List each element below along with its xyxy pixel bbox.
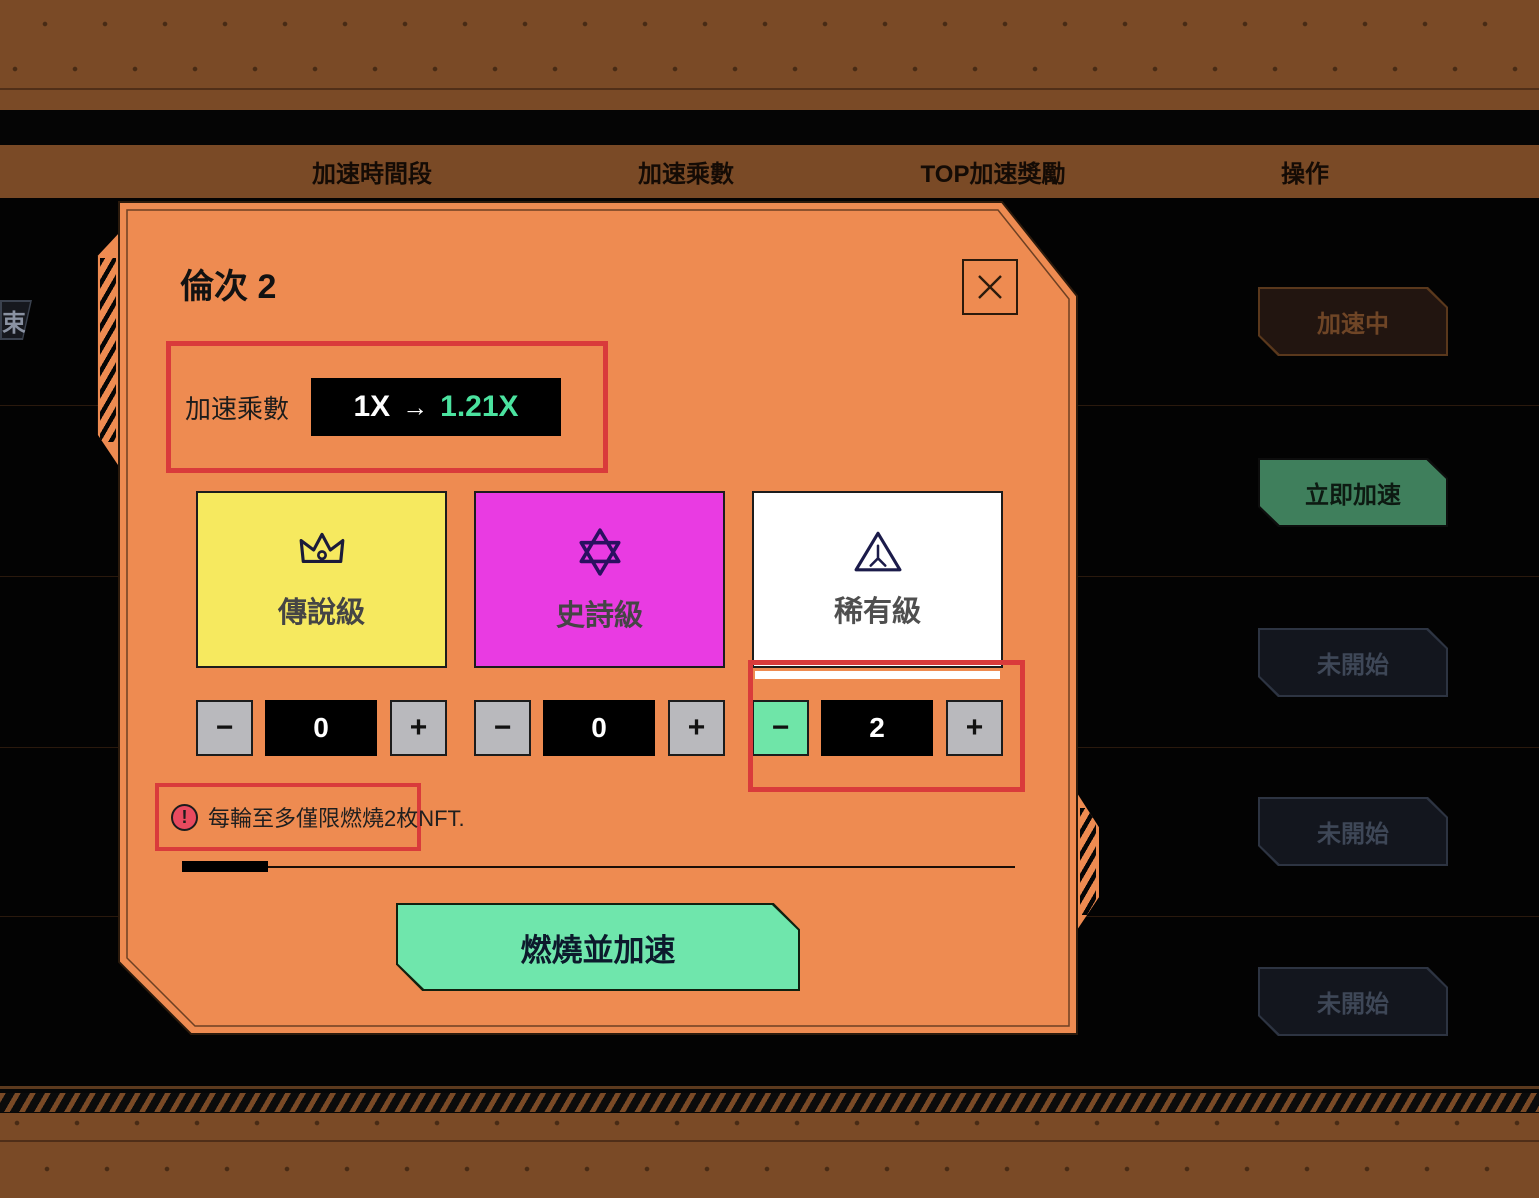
count-value: 0 [265,700,377,756]
hexagram-icon [577,526,623,576]
arrow-right-icon: → [402,392,428,423]
page: 加速時間段 加速乘數 TOP加速獎勵 操作 束 加速中 立即加速 未開始 未開始… [0,0,1539,1198]
status-chip-clipped: 束 [0,300,32,340]
multiplier-to: 1.21X [440,390,518,424]
rare-stepper-highlight-box [748,660,1025,792]
minus-button[interactable]: − [196,700,253,756]
burn-progress-fill [182,861,268,872]
action-button-accelerate-now[interactable]: 立即加速 [1258,458,1448,527]
card-label: 史詩級 [556,592,643,634]
burn-and-accelerate-button[interactable]: 燃燒並加速 [396,903,800,991]
burn-button-label: 燃燒並加速 [396,903,800,991]
action-button-label: 未開始 [1258,797,1448,866]
action-button-not-started: 未開始 [1258,967,1448,1036]
triangle-icon [854,530,902,572]
close-button[interactable] [962,259,1018,315]
multiplier-highlight-box: 加速乘數 1X → 1.21X [166,341,608,473]
warning-text: 每輪至多僅限燃燒2枚NFT. [208,801,465,833]
rare-card-selected-underline [755,671,1000,679]
multiplier-badge: 1X → 1.21X [311,378,561,436]
card-epic[interactable]: 史詩級 [474,491,725,668]
action-button-label: 未開始 [1258,628,1448,697]
burn-progress-track [182,866,1015,868]
column-header-actions: 操作 [1281,145,1329,198]
multiplier-label: 加速乘數 [185,389,289,426]
plus-button[interactable]: + [390,700,447,756]
close-icon [973,270,1007,304]
action-button-label: 加速中 [1258,287,1448,356]
card-legendary[interactable]: 傳說級 [196,491,447,668]
multiplier-from: 1X [353,390,390,424]
burn-accelerate-dialog: 倫次 2 加速乘數 1X → 1.21X 傳說級 [118,201,1078,1035]
action-button-label: 立即加速 [1258,458,1448,527]
action-button-label: 未開始 [1258,967,1448,1036]
bottom-decor-band [0,1113,1539,1198]
top-decor-band [0,0,1539,110]
card-label: 傳說級 [278,589,365,631]
modal-right-hatch-tab [1077,793,1099,930]
exclamation-icon: ! [171,804,198,831]
count-value: 0 [543,700,655,756]
hazard-stripe-band [0,1086,1539,1113]
burn-limit-warning: ! 每輪至多僅限燃燒2枚NFT. [155,783,421,851]
card-label: 稀有級 [834,588,921,630]
action-button-not-started: 未開始 [1258,628,1448,697]
card-rare[interactable]: 稀有級 [752,491,1003,668]
stepper-legendary: − 0 + [196,700,447,756]
status-chip-label: 束 [0,300,32,340]
column-header-accel-multiplier: 加速乘數 [638,145,734,198]
minus-button[interactable]: − [474,700,531,756]
action-button-not-started: 未開始 [1258,797,1448,866]
table-header: 加速時間段 加速乘數 TOP加速獎勵 操作 [0,145,1539,198]
column-header-top-accel-reward: TOP加速獎勵 [921,145,1066,198]
header-gap-strip [0,110,1539,145]
action-button-accelerating: 加速中 [1258,287,1448,356]
plus-button[interactable]: + [668,700,725,756]
dialog-title: 倫次 2 [180,259,276,308]
column-header-accel-period: 加速時間段 [312,145,432,198]
stepper-epic: − 0 + [474,700,725,756]
modal-left-hatch-tab [96,232,120,468]
crown-icon [297,529,347,573]
